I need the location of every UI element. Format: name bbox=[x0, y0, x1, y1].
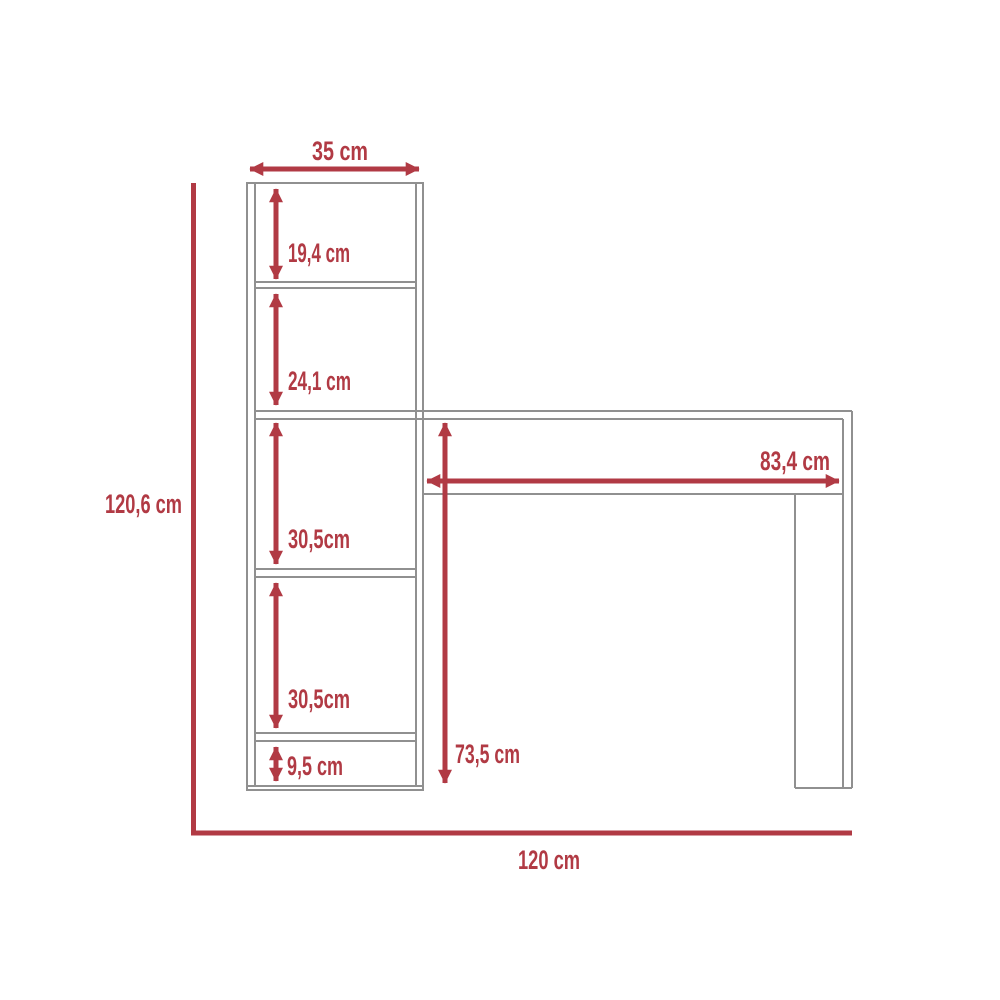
label-tower-section-3: 30,5cm bbox=[288, 524, 350, 554]
diagram-canvas: 35 cm 19,4 cm 24,1 cm 30,5cm 30,5cm 9,5 … bbox=[0, 0, 1000, 1000]
label-tower-section-5: 9,5 cm bbox=[287, 751, 343, 781]
label-tower-section-2: 24,1 cm bbox=[288, 366, 351, 396]
dimension-labels: 35 cm 19,4 cm 24,1 cm 30,5cm 30,5cm 9,5 … bbox=[105, 136, 830, 875]
label-total-width: 120 cm bbox=[518, 845, 580, 875]
label-tower-width: 35 cm bbox=[312, 136, 368, 166]
label-total-height: 120,6 cm bbox=[105, 489, 182, 519]
label-tower-section-1: 19,4 cm bbox=[288, 238, 350, 268]
furniture-dimension-diagram: 35 cm 19,4 cm 24,1 cm 30,5cm 30,5cm 9,5 … bbox=[0, 0, 1000, 1000]
overall-dimension-axis bbox=[194, 183, 853, 833]
label-tower-section-4: 30,5cm bbox=[288, 684, 350, 714]
label-desk-height: 73,5 cm bbox=[455, 739, 520, 769]
label-desk-clear-width: 83,4 cm bbox=[760, 446, 830, 476]
